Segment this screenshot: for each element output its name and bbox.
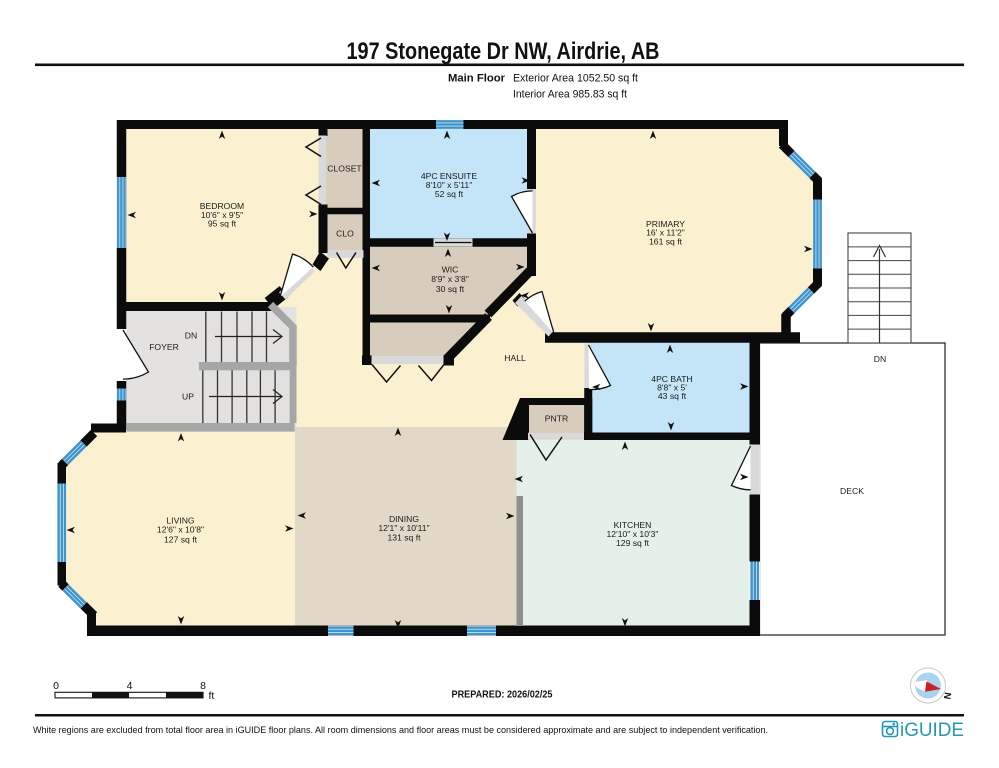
svg-text:52 sq ft: 52 sq ft xyxy=(435,189,464,199)
svg-text:FOYER: FOYER xyxy=(149,342,179,352)
svg-text:129 sq ft: 129 sq ft xyxy=(616,538,650,548)
svg-text:Exterior Area 1052.50 sq ft: Exterior Area 1052.50 sq ft xyxy=(513,73,639,85)
svg-text:4: 4 xyxy=(127,680,133,692)
svg-text:HALL: HALL xyxy=(504,353,526,363)
svg-text:12'1" x 10'11": 12'1" x 10'11" xyxy=(378,523,429,533)
svg-text:131 sq ft: 131 sq ft xyxy=(388,533,422,543)
svg-text:UP: UP xyxy=(182,392,194,402)
svg-text:DN: DN xyxy=(874,354,886,364)
svg-text:0: 0 xyxy=(53,680,59,692)
svg-text:WIC: WIC xyxy=(442,265,459,275)
svg-text:N: N xyxy=(941,691,953,700)
svg-text:161 sq ft: 161 sq ft xyxy=(649,237,683,247)
svg-text:197 Stonegate Dr NW, Airdrie,: 197 Stonegate Dr NW, Airdrie, AB xyxy=(347,38,660,65)
svg-text:Interior Area 985.83 sq ft: Interior Area 985.83 sq ft xyxy=(513,89,628,101)
svg-text:95 sq ft: 95 sq ft xyxy=(208,219,237,229)
svg-text:ft: ft xyxy=(209,690,215,702)
svg-text:DECK: DECK xyxy=(840,486,864,496)
svg-text:12'6" x 10'8": 12'6" x 10'8" xyxy=(157,525,204,535)
svg-text:8'9" x 3'8": 8'9" x 3'8" xyxy=(431,274,469,284)
svg-text:127 sq ft: 127 sq ft xyxy=(164,535,198,545)
svg-text:43 sq ft: 43 sq ft xyxy=(658,391,687,401)
svg-text:CLO: CLO xyxy=(336,229,354,239)
svg-text:30 sq ft: 30 sq ft xyxy=(436,284,465,294)
svg-text:DN: DN xyxy=(185,331,197,341)
svg-text:PNTR: PNTR xyxy=(545,414,568,424)
svg-text:White regions are excluded fro: White regions are excluded from total fl… xyxy=(33,725,768,735)
svg-text:iGUIDE: iGUIDE xyxy=(900,719,964,741)
svg-text:CLOSET: CLOSET xyxy=(327,164,362,174)
svg-text:Main Floor: Main Floor xyxy=(448,73,506,85)
svg-text:PREPARED: 2026/02/25: PREPARED: 2026/02/25 xyxy=(452,690,553,701)
svg-text:8: 8 xyxy=(200,680,206,692)
